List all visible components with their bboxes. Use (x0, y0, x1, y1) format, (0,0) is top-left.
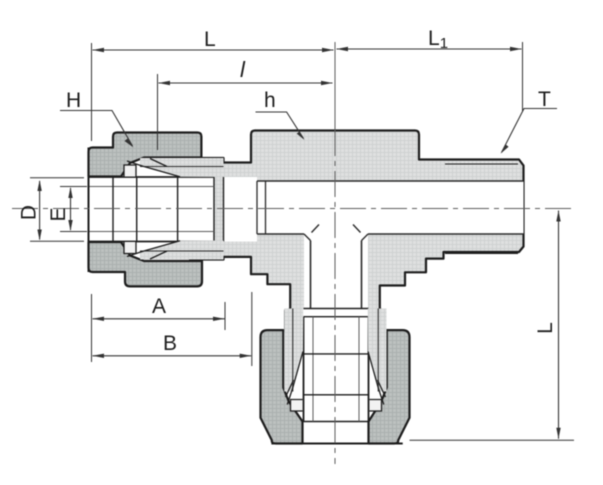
svg-text:B: B (163, 332, 177, 355)
svg-text:h: h (264, 89, 276, 112)
svg-text:A: A (152, 295, 166, 318)
svg-text:L: L (204, 28, 216, 51)
svg-text:L: L (534, 322, 557, 334)
svg-text:E: E (47, 207, 70, 221)
svg-text:H: H (66, 89, 81, 112)
svg-text:T: T (538, 88, 551, 111)
svg-text:D: D (18, 205, 41, 220)
